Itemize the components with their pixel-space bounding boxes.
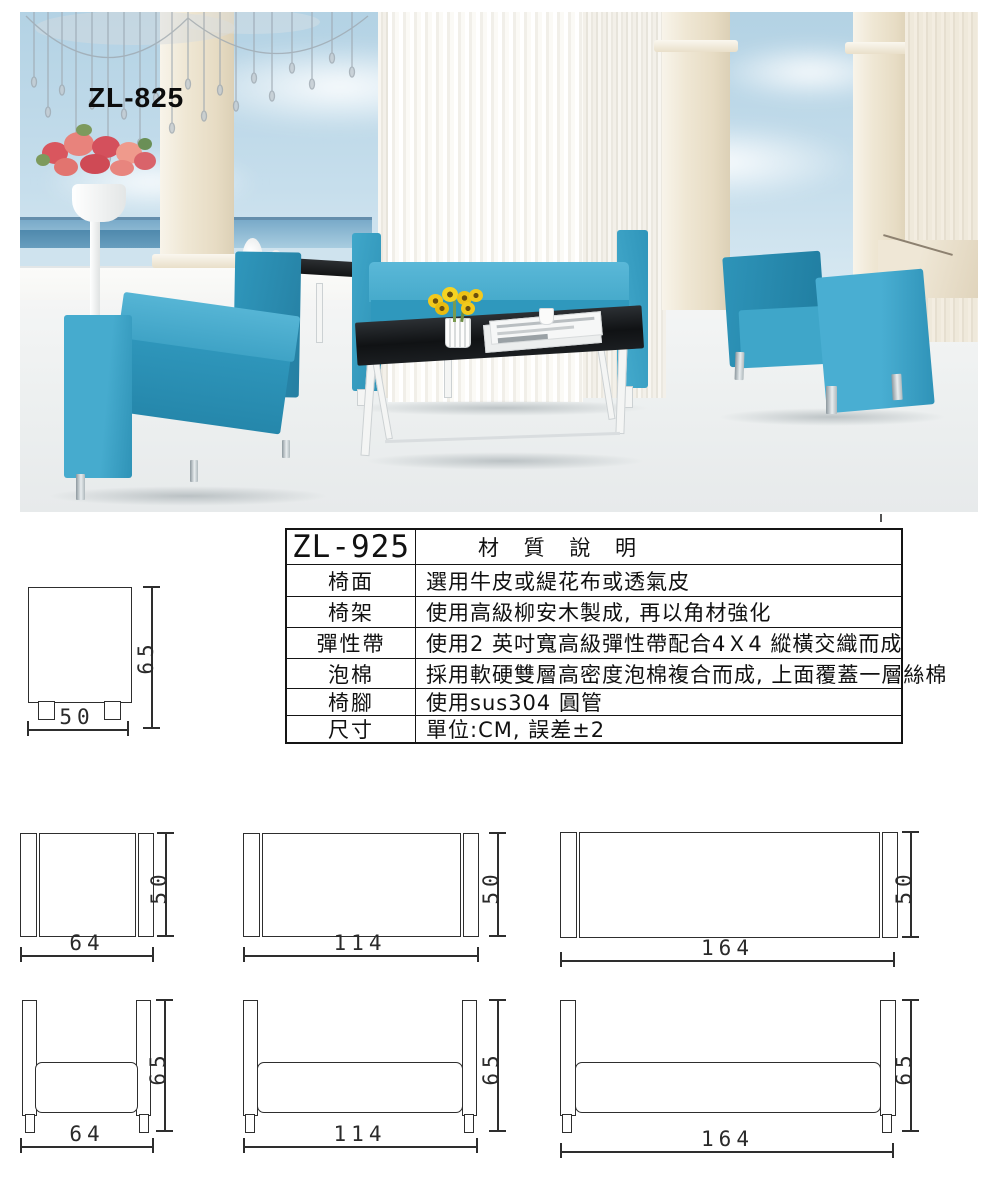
- armrest-outline: [463, 833, 479, 937]
- armrest-outline: [243, 833, 260, 937]
- dim-tick: [893, 952, 895, 967]
- dim-tick: [156, 1130, 173, 1132]
- dim-width-label: 164: [660, 1127, 795, 1151]
- chrome-leg: [282, 440, 290, 458]
- chrome-leg: [190, 460, 198, 482]
- flower-stem: [453, 298, 456, 322]
- column-center-capital: [654, 40, 738, 52]
- product-code-label: ZL-825: [88, 82, 184, 114]
- dim-width-label: 64: [32, 1122, 142, 1146]
- dim-tick: [902, 831, 919, 833]
- spec-row-label: 彈性帶: [287, 628, 416, 658]
- spec-title-cell: 材 質 說 明: [416, 530, 901, 564]
- spec-model-cell: ZL-925: [287, 530, 416, 564]
- spec-row: 彈性帶 使用2 英吋寬高級彈性帶配合4Ｘ4 縱橫交織而成: [287, 628, 901, 659]
- dim-line: [243, 955, 479, 957]
- dim-tick: [143, 586, 160, 588]
- dim-tick: [489, 935, 506, 937]
- chrome-leg: [826, 386, 837, 414]
- dim-depth-label: 50: [147, 867, 171, 907]
- dim-tick: [27, 721, 29, 736]
- dim-depth-label: 50: [892, 867, 916, 907]
- dim-width-label: 114: [295, 1122, 425, 1146]
- dim-tick: [157, 832, 174, 834]
- dim-tick: [902, 1130, 919, 1132]
- dim-line: [20, 955, 154, 957]
- armrest-outline: [20, 833, 37, 937]
- armrest-outline: [560, 832, 577, 938]
- spec-table: ZL-925 材 質 說 明 椅面 選用牛皮或緹花布或透氣皮 椅架 使用高級柳安…: [285, 528, 903, 744]
- column-left-base: [152, 254, 242, 268]
- seat-outline: [262, 833, 461, 937]
- dim-line: [560, 960, 895, 962]
- seat-body-outline: [28, 587, 132, 703]
- sofa-leg-outline: [464, 1114, 474, 1133]
- spec-row: 尺寸 單位:CM, 誤差±2: [287, 716, 901, 742]
- seat-cushion-outline: [257, 1062, 463, 1113]
- spec-row: 泡棉 採用軟硬雙層高密度泡棉複合而成, 上面覆蓋一層絲棉: [287, 659, 901, 689]
- seat-cushion-outline: [35, 1062, 138, 1113]
- dim-line: [20, 1146, 154, 1148]
- dim-tick: [243, 947, 245, 962]
- spec-row-value: 採用軟硬雙層高密度泡棉複合而成, 上面覆蓋一層絲棉: [416, 659, 947, 688]
- seat-outline: [579, 832, 880, 938]
- dim-tick: [152, 947, 154, 962]
- armrest-outline: [462, 1000, 477, 1116]
- dim-tick: [489, 999, 506, 1001]
- sofa-leg-outline: [245, 1114, 255, 1133]
- dim-tick: [892, 1143, 894, 1158]
- dim-tick: [489, 832, 506, 834]
- armrest-outline: [243, 1000, 258, 1116]
- dim-width-label: 64: [32, 931, 142, 955]
- dim-tick: [156, 999, 173, 1001]
- dim-line: [560, 1151, 894, 1153]
- dim-tick: [127, 721, 129, 736]
- seat-outline: [39, 833, 136, 937]
- dim-tick: [243, 1138, 245, 1153]
- spec-row-value: 單位:CM, 誤差±2: [416, 716, 901, 742]
- spec-row-label: 椅腳: [287, 689, 416, 715]
- dim-tick: [152, 1138, 154, 1153]
- chandelier: [20, 12, 380, 182]
- chaise-armrest: [64, 315, 132, 478]
- dim-line: [243, 1146, 478, 1148]
- showroom-photo: ZL-825: [20, 12, 978, 512]
- dim-tick: [902, 999, 919, 1001]
- dim-width-label: 164: [660, 936, 795, 960]
- spec-row-label: 泡棉: [287, 659, 416, 688]
- dim-tick: [20, 947, 22, 962]
- sofa-shadow: [48, 486, 328, 506]
- spec-row-label: 椅架: [287, 597, 416, 627]
- sofa-leg-outline: [882, 1114, 892, 1133]
- catalog-page: ZL-825: [0, 0, 1000, 1184]
- dim-tick: [476, 1138, 478, 1153]
- dim-height-label: 65: [892, 1048, 916, 1088]
- dim-depth-label: 50: [479, 867, 503, 907]
- spec-row-value: 使用sus304 圓管: [416, 689, 901, 715]
- dim-tick: [157, 935, 174, 937]
- dim-tick: [560, 1143, 562, 1158]
- sofa-leg-outline: [562, 1114, 572, 1133]
- armrest-outline: [560, 1000, 576, 1116]
- spec-row: 椅腳 使用sus304 圓管: [287, 689, 901, 716]
- spec-row: 椅架 使用高級柳安木製成, 再以角材強化: [287, 597, 901, 628]
- dim-height-label: 65: [146, 1048, 170, 1088]
- dim-tick: [489, 1130, 506, 1132]
- spec-row-label: 椅面: [287, 565, 416, 596]
- dim-height-label: 65: [479, 1048, 503, 1088]
- flower-vase-cup: [445, 318, 471, 348]
- spec-header-row: ZL-925 材 質 說 明: [287, 530, 901, 565]
- dim-tick: [902, 936, 919, 938]
- dim-height-label: 65: [134, 637, 158, 677]
- table-shadow: [365, 452, 645, 470]
- spec-row-label: 尺寸: [287, 716, 416, 742]
- dim-width-label: 114: [295, 931, 425, 955]
- armchair-seat: [739, 306, 832, 369]
- console-table-leg: [316, 283, 323, 343]
- bench-seat-top: [369, 262, 629, 302]
- dim-tick: [560, 952, 562, 967]
- seat-cushion-outline: [575, 1062, 881, 1113]
- dim-tick: [20, 1138, 22, 1153]
- dim-tick: [477, 947, 479, 962]
- spec-row-value: 使用高級柳安木製成, 再以角材強化: [416, 597, 901, 627]
- dim-line: [27, 729, 129, 731]
- chrome-leg: [76, 474, 85, 500]
- flower-urn: [72, 184, 126, 222]
- column-center: [662, 12, 730, 310]
- dim-width-label: 50: [47, 705, 107, 729]
- teacup: [539, 308, 554, 325]
- chrome-leg: [735, 352, 745, 380]
- stray-tick: [880, 514, 882, 522]
- spec-row-value: 使用2 英吋寬高級彈性帶配合4Ｘ4 縱橫交織而成: [416, 628, 902, 658]
- chrome-leg: [891, 374, 902, 400]
- dim-tick: [143, 727, 160, 729]
- spec-row: 椅面 選用牛皮或緹花布或透氣皮: [287, 565, 901, 597]
- spec-row-value: 選用牛皮或緹花布或透氣皮: [416, 565, 901, 596]
